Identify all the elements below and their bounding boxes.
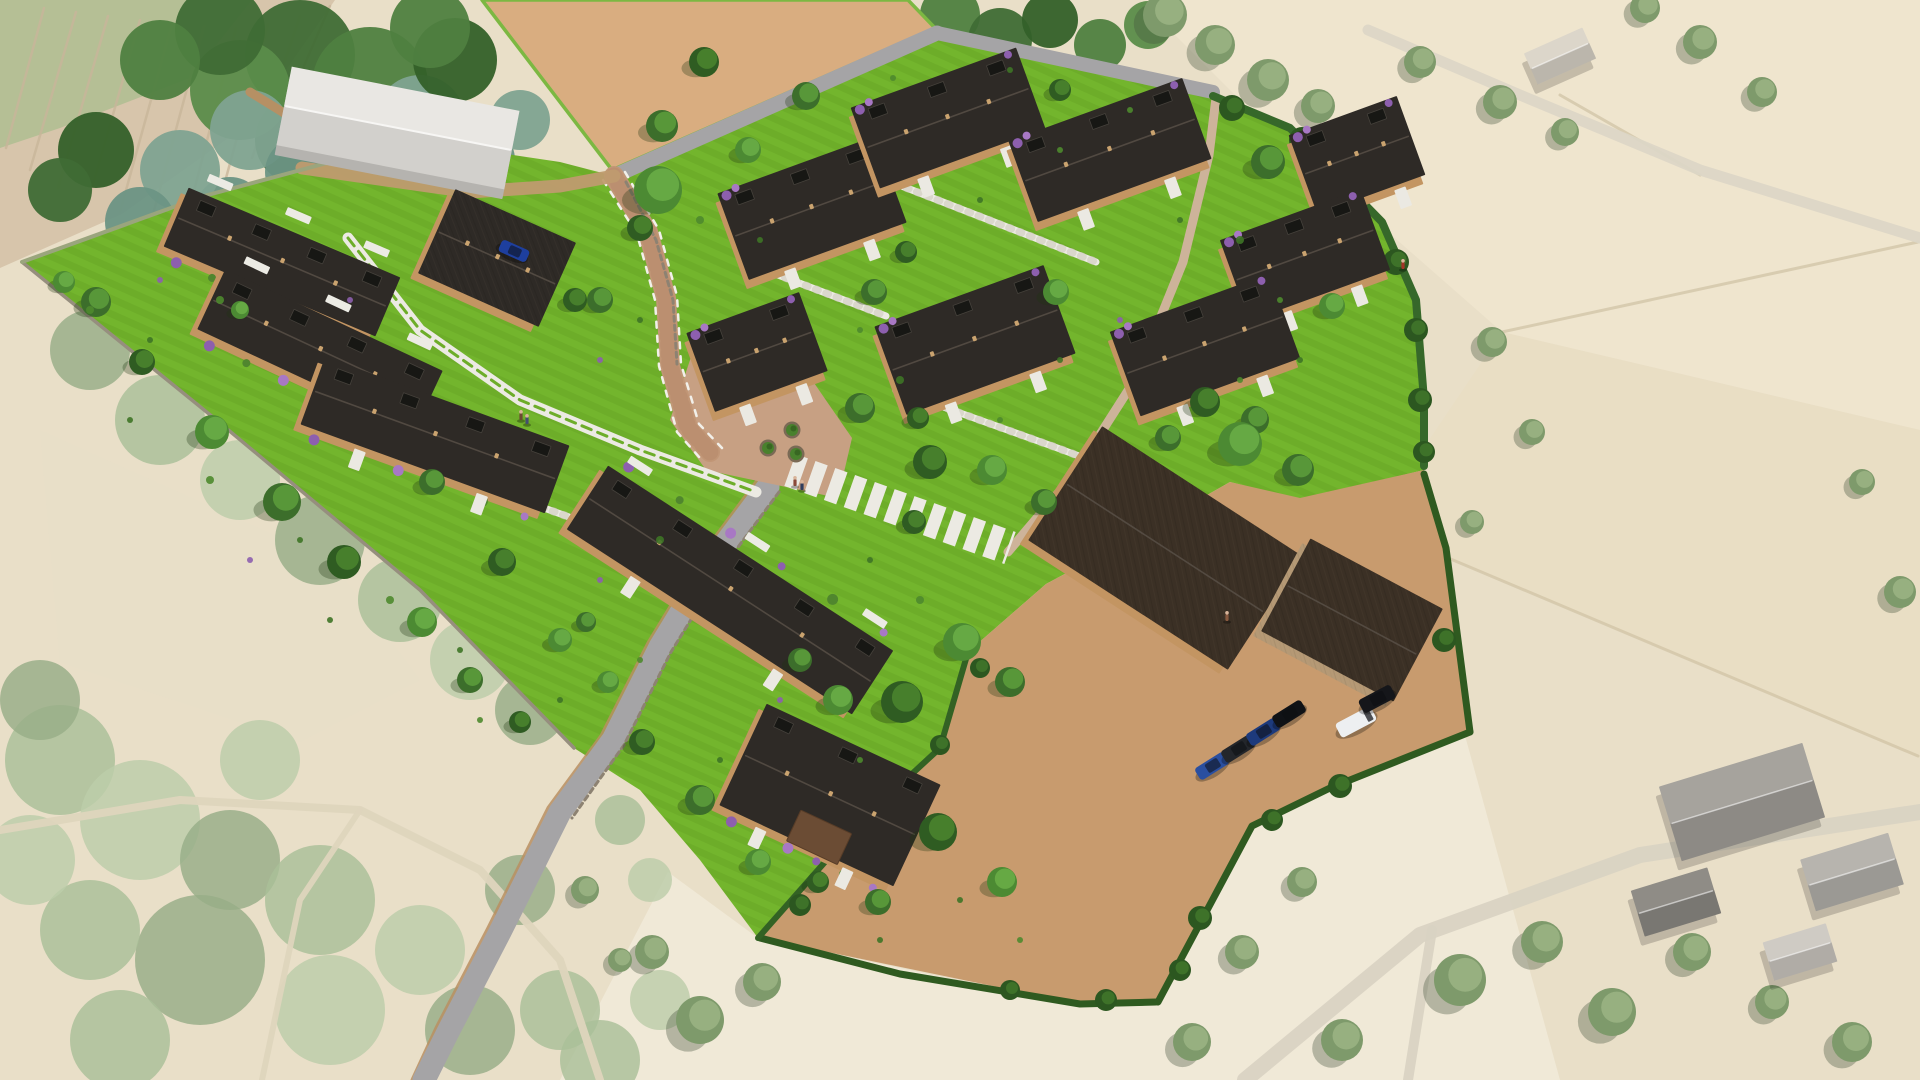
pedestrian-body (519, 413, 522, 420)
tree-canopy-highlight (426, 470, 444, 488)
hedge-tree-highlight (1268, 811, 1281, 824)
hedge-tree-highlight (1411, 320, 1425, 334)
lawn-bush (916, 596, 924, 604)
lawn-bush (477, 717, 483, 723)
tree-canopy-highlight (1229, 424, 1259, 454)
photo-tree-highlight (1856, 471, 1873, 488)
pedestrian-body (793, 479, 796, 486)
photo-tree-highlight (1559, 120, 1577, 138)
lawn-bush (1237, 377, 1243, 383)
lawn-bush (247, 557, 253, 563)
photo-tree-highlight (1683, 936, 1708, 961)
lawn-bush (890, 75, 896, 81)
lawn-bush (1277, 297, 1283, 303)
lawn-bush (997, 417, 1003, 423)
lawn-bush (717, 757, 723, 763)
tree-canopy-highlight (515, 712, 530, 727)
lawn-bush (857, 757, 863, 763)
tree-canopy-highlight (697, 49, 717, 69)
photo-tree-highlight (1259, 62, 1286, 89)
hedge-tree-highlight (1176, 961, 1189, 974)
lawn-bush (867, 557, 873, 563)
lawn-bush (1007, 67, 1013, 73)
tree-canopy-highlight (136, 350, 154, 368)
tree-canopy-highlight (569, 289, 585, 305)
hedge-tree-highlight (1006, 982, 1018, 994)
tree-canopy-highlight (985, 457, 1005, 477)
lawn-bush (597, 577, 603, 583)
scrub-vegetation-blob (0, 660, 80, 740)
hedge-tree-highlight (1227, 98, 1243, 114)
photo-tree-highlight (1526, 421, 1543, 438)
tree-canopy-highlight (1162, 426, 1180, 444)
lawn-bush (896, 376, 904, 384)
hedge-tree-highlight (1439, 630, 1453, 644)
photo-tree-highlight (1843, 1025, 1869, 1051)
tree-canopy-highlight (872, 890, 890, 908)
photo-tree-highlight (615, 950, 631, 966)
pedestrian-head (519, 410, 523, 414)
lawn-bush (347, 297, 353, 303)
forest-canopy-blob (28, 158, 92, 222)
lawn-bush (656, 536, 664, 544)
tree-canopy-highlight (742, 138, 760, 156)
pedestrian-body (1225, 614, 1228, 621)
photo-tree-highlight (1295, 869, 1315, 889)
tree-canopy-highlight (913, 408, 928, 423)
lawn-bush (127, 417, 133, 423)
tree-canopy-highlight (752, 850, 770, 868)
tree-canopy-highlight (1055, 80, 1070, 95)
photo-tree-highlight (1183, 1026, 1208, 1051)
tree-canopy-highlight (594, 288, 612, 306)
tree-canopy-highlight (794, 649, 810, 665)
lawn-bush (637, 317, 643, 323)
pedestrian-body (1401, 262, 1404, 269)
planter-shrub-core (791, 426, 797, 432)
photo-tree-highlight (1333, 1022, 1360, 1049)
photo-tree-highlight (579, 878, 597, 896)
lawn-bush (1117, 317, 1123, 323)
tree-canopy-highlight (901, 242, 916, 257)
pedestrian-head (793, 476, 797, 480)
tree-canopy-highlight (908, 511, 924, 527)
tree-canopy-highlight (336, 547, 359, 570)
architectural-aerial-render (0, 0, 1920, 1080)
lawn-bush (297, 537, 303, 543)
tree-canopy-highlight (1198, 389, 1218, 409)
hedge-tree-highlight (1102, 991, 1115, 1004)
lawn-bush (957, 897, 963, 903)
tree-canopy-highlight (495, 549, 514, 568)
tree-canopy-highlight (89, 289, 109, 309)
lawn-bush (1127, 107, 1133, 113)
tree-canopy-highlight (953, 625, 979, 651)
scrub-vegetation-blob (375, 905, 465, 995)
photo-tree-highlight (1533, 924, 1560, 951)
lawn-bush (86, 306, 94, 314)
lawn-bush (637, 657, 643, 663)
tree-canopy-highlight (799, 83, 818, 102)
photo-tree-highlight (1893, 578, 1914, 599)
lawn-bush (157, 277, 163, 283)
lawn-bush (386, 596, 394, 604)
lawn-bush (1297, 357, 1303, 363)
tree-canopy-highlight (892, 683, 921, 712)
lawn-bush (216, 296, 224, 304)
lawn-bush (977, 197, 983, 203)
photo-tree-highlight (689, 1000, 720, 1031)
pedestrian-body (800, 483, 803, 490)
scrub-vegetation-blob (628, 858, 672, 902)
scrub-vegetation-blob (595, 795, 645, 845)
hedge-tree-highlight (976, 660, 988, 672)
lawn-bush (877, 937, 883, 943)
photo-tree-highlight (1485, 329, 1505, 349)
scrub-vegetation-blob (220, 720, 300, 800)
tree-canopy-highlight (1003, 669, 1023, 689)
photo-tree-highlight (1764, 988, 1786, 1010)
tree-canopy-highlight (929, 815, 955, 841)
tree-canopy-highlight (922, 447, 945, 470)
pedestrian-head (1225, 611, 1229, 615)
hedge-tree-highlight (1335, 776, 1349, 790)
photo-tree-highlight (1601, 992, 1632, 1023)
tree-canopy-highlight (464, 668, 482, 686)
tree-canopy-highlight (693, 787, 713, 807)
lawn-bush (557, 697, 563, 703)
lawn-bush (597, 357, 603, 363)
planter-shrub-core (767, 444, 773, 450)
tree-canopy-highlight (654, 112, 676, 134)
tree-canopy-highlight (204, 417, 227, 440)
tree-canopy-highlight (59, 272, 74, 287)
scrub-vegetation-blob (180, 810, 280, 910)
tree-canopy-highlight (634, 216, 652, 234)
lawn-bush (457, 647, 463, 653)
tree-canopy-highlight (273, 485, 299, 511)
scrub-vegetation-blob (275, 955, 385, 1065)
lawn-bush (1057, 357, 1063, 363)
photo-tree-highlight (1206, 28, 1232, 54)
hedge-tree-highlight (1420, 443, 1433, 456)
lawn-bush (327, 617, 333, 623)
photo-tree-highlight (1448, 958, 1482, 992)
photo-tree-highlight (1413, 48, 1434, 69)
pedestrian-head (1401, 259, 1405, 263)
lawn-bush (147, 337, 153, 343)
tree-canopy-highlight (646, 168, 679, 201)
tree-canopy-highlight (1248, 407, 1267, 426)
photo-tree-highlight (1310, 92, 1332, 114)
tree-canopy-highlight (1050, 280, 1068, 298)
photo-tree-highlight (1692, 28, 1714, 50)
lawn-bush (777, 697, 783, 703)
photo-tree-highlight (1755, 79, 1775, 99)
tree-canopy-highlight (636, 730, 654, 748)
hedge-tree-highlight (796, 896, 809, 909)
tree-canopy-highlight (1290, 456, 1312, 478)
tree-canopy-highlight (831, 687, 851, 707)
forest-canopy-blob (120, 20, 200, 100)
tree-canopy-highlight (1326, 294, 1344, 312)
lawn-bush (1057, 147, 1063, 153)
tree-canopy-highlight (581, 613, 595, 627)
pedestrian-head (800, 480, 804, 484)
tree-canopy-highlight (1260, 147, 1283, 170)
photo-tree-highlight (1234, 938, 1256, 960)
hedge-tree-highlight (936, 737, 948, 749)
photo-tree-highlight (1492, 88, 1514, 110)
pedestrian-head (525, 414, 529, 418)
lawn-bush (696, 216, 704, 224)
tree-canopy-highlight (995, 869, 1015, 889)
lawn-bush (1017, 937, 1023, 943)
photo-tree-highlight (753, 966, 778, 991)
tree-canopy-highlight (236, 302, 248, 314)
scrub-vegetation-blob (265, 845, 375, 955)
tree-canopy-highlight (1038, 490, 1056, 508)
tree-canopy-highlight (415, 609, 435, 629)
lawn-bush (1236, 236, 1244, 244)
site-plan-3d-render (0, 0, 1920, 1080)
lawn-bush (757, 237, 763, 243)
tree-canopy-highlight (853, 395, 873, 415)
tree-canopy-highlight (554, 629, 570, 645)
tree-canopy-highlight (813, 872, 828, 887)
lawn-bush (1177, 217, 1183, 223)
tree-canopy-highlight (603, 672, 618, 687)
pedestrian-body (525, 417, 528, 424)
tree-canopy-highlight (868, 280, 886, 298)
planter-shrub-core (795, 450, 801, 456)
photo-tree-highlight (1467, 512, 1483, 528)
photo-tree-highlight (644, 938, 666, 960)
lawn-bush (857, 327, 863, 333)
hedge-tree-highlight (1415, 390, 1429, 404)
lawn-bush (206, 476, 214, 484)
hedge-tree-highlight (1195, 908, 1209, 922)
